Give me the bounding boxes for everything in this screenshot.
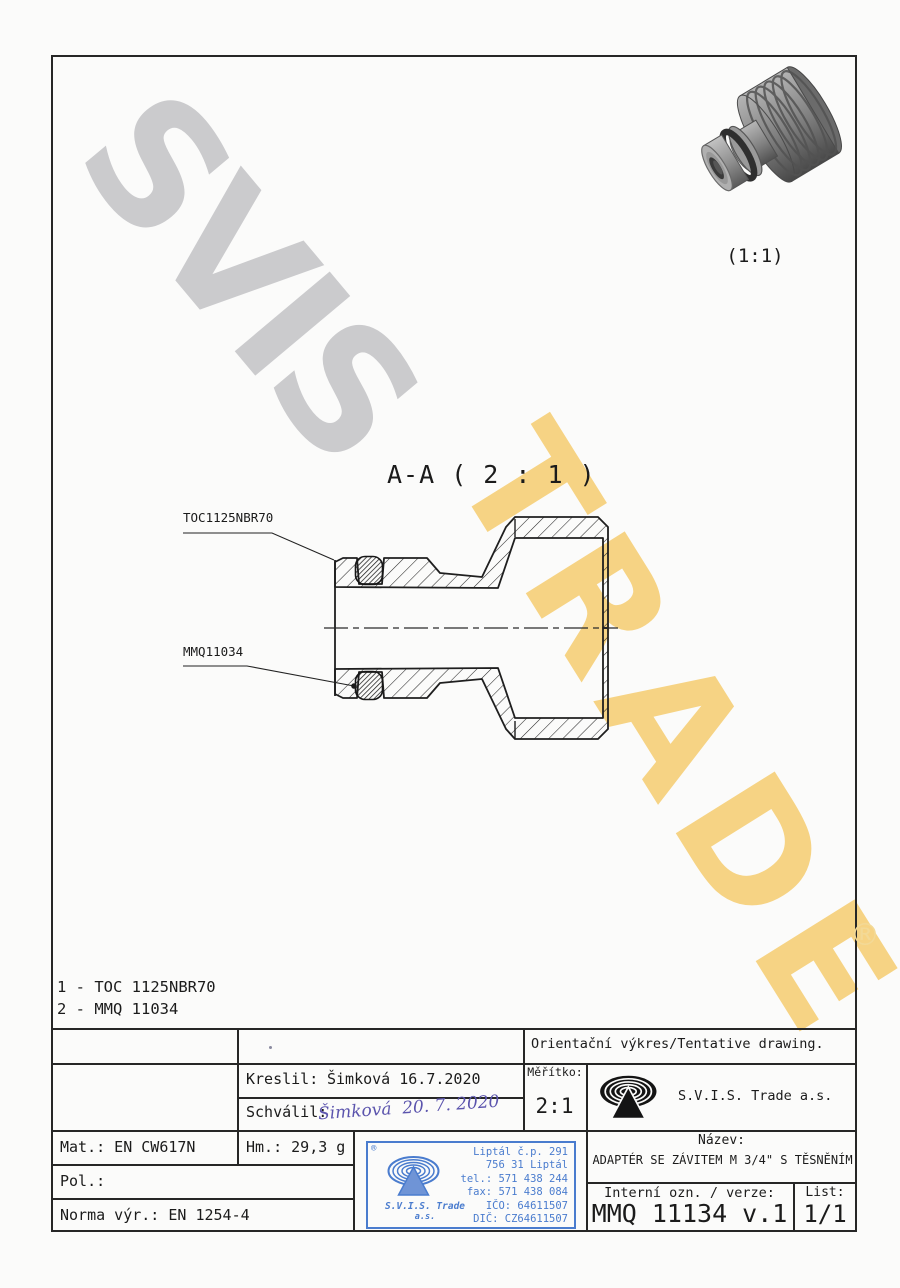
titleblock-line xyxy=(51,1164,353,1166)
position-value: Pol.: xyxy=(60,1173,105,1190)
stamp-registered-icon: ® xyxy=(371,1144,376,1154)
watermark-registered-icon: ® xyxy=(850,918,880,953)
stamp-phone: tel.: 571 438 244 xyxy=(461,1173,568,1186)
standard-value: Norma výr.: EN 1254-4 xyxy=(60,1207,250,1224)
parts-list-item-1: 1 - TOC 1125NBR70 xyxy=(57,979,216,997)
section-title: A-A ( 2 : 1 ) xyxy=(387,461,567,490)
drawing-sheet: SVIS TRADE ® xyxy=(0,0,900,1288)
company-name: S.V.I.S. Trade a.s. xyxy=(678,1089,832,1105)
scale-value: 2:1 xyxy=(523,1094,586,1118)
drawn-by-value: Šimková 16.7.2020 xyxy=(327,1071,481,1088)
material-value: Mat.: EN CW617N xyxy=(60,1139,195,1156)
stamp-ico: IČO: 64611507 xyxy=(461,1200,568,1213)
stamp-logo-icon xyxy=(382,1151,448,1199)
part-3d-view xyxy=(650,58,865,223)
scale-3d-label: (1:1) xyxy=(715,246,795,268)
company-logo-icon xyxy=(599,1068,661,1124)
part-name-value: ADAPTÉR SE ZÁVITEM M 3/4" S TĚSNĚNÍM xyxy=(588,1154,857,1168)
tentative-note: Orientační výkres/Tentative drawing. xyxy=(531,1037,824,1053)
sheet-value: 1/1 xyxy=(793,1201,857,1229)
stamp-address-block: Liptál č.p. 291 756 31 Liptál tel.: 571 … xyxy=(461,1146,568,1226)
sheet-label: List: xyxy=(793,1186,857,1201)
scan-speck xyxy=(269,1046,272,1049)
titleblock-line xyxy=(51,1198,353,1200)
stamp-dic: DIČ: CZ64611507 xyxy=(461,1213,568,1226)
scale-label: Měřítko: xyxy=(525,1066,585,1079)
titleblock-line xyxy=(51,1063,857,1065)
company-stamp: ® S.V.I.S. Trade a.s. Liptál č.p. 291 75… xyxy=(366,1141,576,1229)
stamp-company-suffix: a.s. xyxy=(380,1212,470,1222)
parts-list-item-2: 2 - MMQ 11034 xyxy=(57,1001,178,1019)
drawn-by-label: Kreslil: xyxy=(246,1071,318,1088)
internal-id-value: MMQ 11134 v.1 xyxy=(586,1200,793,1229)
leader-mmq xyxy=(183,666,354,686)
stamp-fax: fax: 571 438 084 xyxy=(461,1186,568,1199)
titleblock-line xyxy=(586,1182,857,1184)
leader-mmq-dot xyxy=(351,683,357,689)
titleblock-line xyxy=(353,1130,355,1232)
weight-value: Hm.: 29,3 g xyxy=(246,1139,345,1156)
leader-toc xyxy=(183,533,334,560)
approved-by-label: Schválil: xyxy=(246,1104,327,1121)
stamp-address-line: Liptál č.p. 291 xyxy=(461,1146,568,1159)
titleblock-line xyxy=(51,1130,857,1132)
titleblock-line xyxy=(51,1028,857,1030)
o-ring-seal-bottom xyxy=(356,672,383,700)
stamp-company-name: S.V.I.S. Trade xyxy=(380,1201,470,1212)
titleblock-line xyxy=(237,1028,239,1164)
callout-bottom-label: MMQ11034 xyxy=(183,645,243,659)
o-ring-seal-top xyxy=(356,557,383,585)
part-name-label: Název: xyxy=(586,1134,857,1149)
stamp-address-line: 756 31 Liptál xyxy=(461,1159,568,1172)
callout-top-label: TOC1125NBR70 xyxy=(183,511,273,525)
